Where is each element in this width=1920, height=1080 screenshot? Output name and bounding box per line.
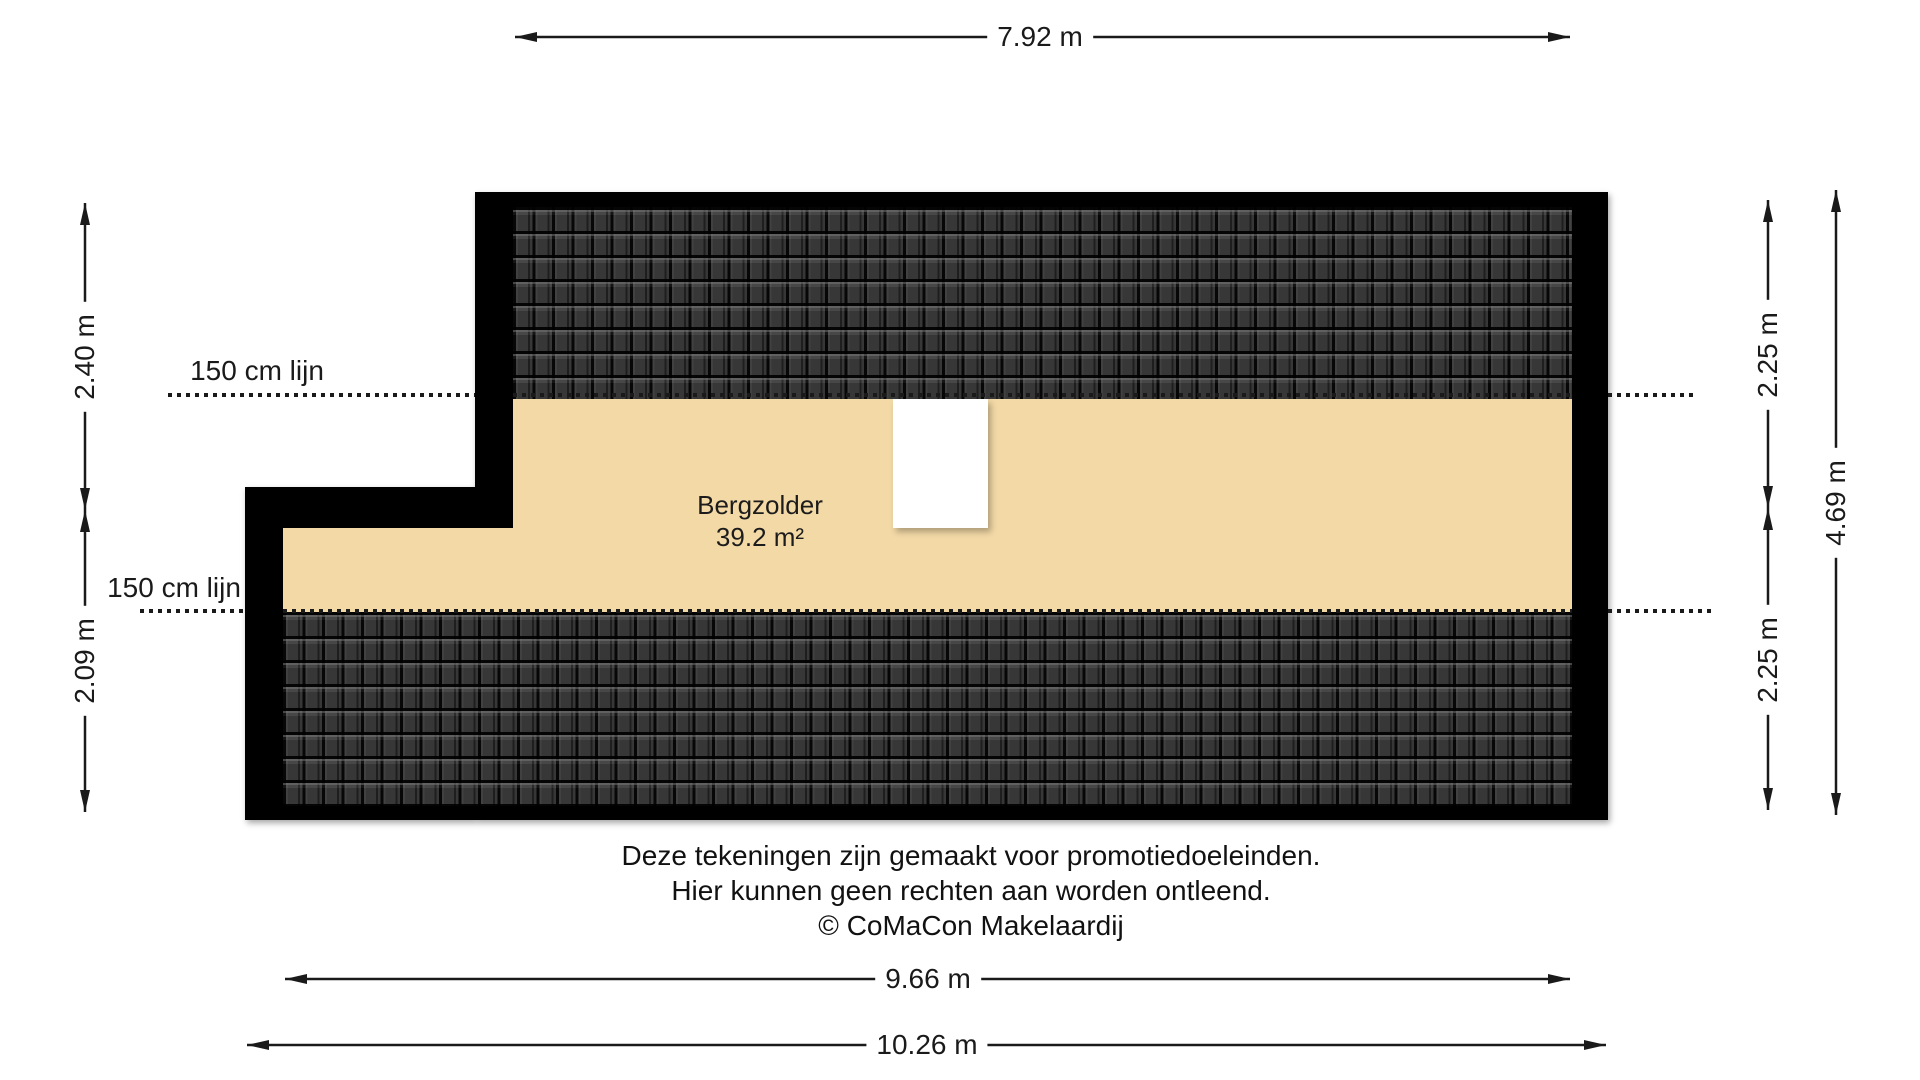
room-label: Bergzolder (560, 489, 960, 521)
room-label-block: Bergzolder 39.2 m² (560, 489, 960, 553)
dim-label-right-inner-lower: 2.25 m (1753, 605, 1783, 715)
clearance-line-lower-inner (283, 609, 1572, 613)
clearance-label-lower: 150 cm lijn (107, 572, 241, 604)
room-area: 39.2 m² (560, 521, 960, 553)
floor-area-step (283, 528, 513, 612)
dim-label-right-outer: 4.69 m (1821, 448, 1851, 558)
floorplan-canvas: 150 cm lijn 150 cm lijn 7.92 m 2.40 m 2.… (0, 0, 1920, 1080)
disclaimer-line-1: Deze tekeningen zijn gemaakt voor promot… (371, 838, 1571, 873)
clearance-line-lower-left (140, 609, 245, 613)
roof-area-bottom (283, 612, 1572, 806)
dim-label-left-lower: 2.09 m (70, 606, 100, 716)
dim-label-bottom-inner: 9.66 m (875, 964, 981, 994)
roof-area-top (513, 207, 1572, 399)
disclaimer-line-3: © CoMaCon Makelaardij (371, 908, 1571, 943)
dim-label-bottom-outer: 10.26 m (866, 1030, 987, 1060)
dim-label-top: 7.92 m (987, 22, 1093, 52)
clearance-line-upper-right (1608, 393, 1697, 397)
clearance-line-upper-inner (513, 393, 1572, 397)
disclaimer-line-2: Hier kunnen geen rechten aan worden ontl… (371, 873, 1571, 908)
clearance-line-lower-right (1608, 609, 1713, 613)
disclaimer-block: Deze tekeningen zijn gemaakt voor promot… (371, 838, 1571, 943)
clearance-label-upper: 150 cm lijn (190, 355, 324, 387)
dim-label-left-upper: 2.40 m (70, 302, 100, 412)
clearance-line-upper-left (168, 393, 475, 397)
dim-label-right-inner-upper: 2.25 m (1753, 300, 1783, 410)
